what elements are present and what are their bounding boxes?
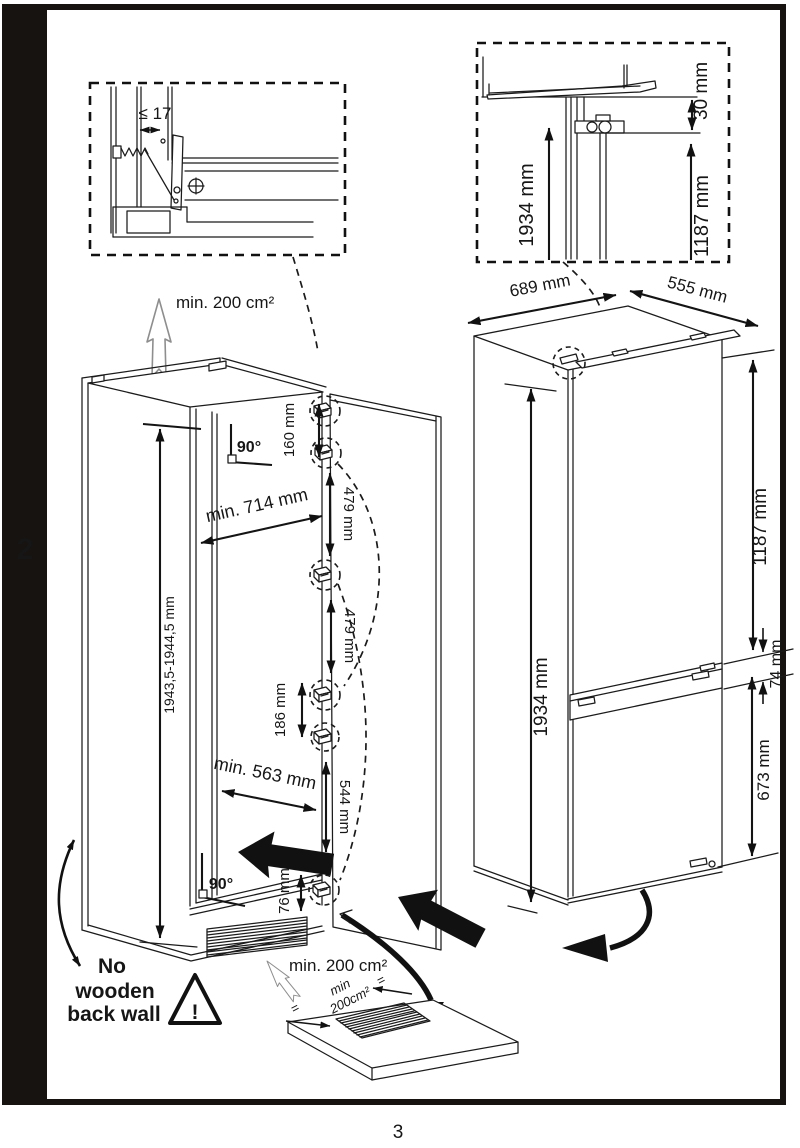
upper-section-label: 1187 mm bbox=[750, 488, 771, 566]
page-number: 3 bbox=[393, 1122, 404, 1143]
warning-line-3: back wall bbox=[67, 1003, 160, 1026]
cabinet-figure: min. 200 cm² bbox=[59, 293, 518, 1080]
base-vent-grille bbox=[207, 917, 307, 957]
depth-label: 689 mm bbox=[508, 270, 572, 300]
angle-mark-top: 90° bbox=[228, 424, 272, 465]
gap-label: 74 mm bbox=[768, 640, 785, 689]
center-mark-left: = bbox=[288, 1000, 302, 1017]
warning-exclamation: ! bbox=[192, 1001, 199, 1024]
lower-section-label: 673 mm bbox=[754, 739, 773, 800]
hinge-gap3-label: 186 mm bbox=[272, 683, 289, 737]
door-swing-arrow bbox=[562, 890, 649, 962]
door-lower-label: 544 mm bbox=[336, 780, 353, 834]
top-detail-box: 30 mm 1934 mm 1187 mm bbox=[477, 43, 729, 350]
hinge-top-offset-label: 160 mm bbox=[281, 403, 298, 457]
hinge-gap2-label: 479 mm bbox=[341, 609, 358, 663]
width-top-label: min. 714 mm bbox=[204, 484, 310, 526]
back-wall-span-arrow bbox=[59, 840, 80, 966]
no-wooden-back-wall-warning: No wooden back wall ! bbox=[67, 955, 220, 1026]
width-bottom-label: min. 563 mm bbox=[212, 753, 318, 793]
hinge-arm bbox=[145, 135, 183, 210]
vent-bottom-label: min. 200 cm² bbox=[289, 956, 388, 975]
installation-diagram: 2 3 bbox=[0, 0, 800, 1148]
top-clearance-label: 30 mm bbox=[691, 62, 712, 120]
cabinet-door-panel bbox=[330, 394, 441, 950]
appliance-figure: 689 mm 555 mm 1934 mm 1187 mm 74 mm 673 … bbox=[468, 270, 793, 962]
section-tab: 2 bbox=[17, 533, 34, 566]
hinge-screw bbox=[113, 146, 148, 158]
manual-page: 2 3 bbox=[0, 0, 800, 1148]
hinge-gap1-label: 479 mm bbox=[340, 487, 357, 541]
vent-top-label: min. 200 cm² bbox=[176, 293, 275, 312]
panel-gap-label: ≤ 17 bbox=[139, 104, 172, 123]
divider-rail bbox=[570, 663, 722, 720]
warning-line-1: No bbox=[98, 955, 126, 978]
angle-bottom-label: 90° bbox=[209, 876, 233, 893]
upper-height-label: 1187 mm bbox=[691, 175, 713, 257]
warning-line-2: wooden bbox=[74, 980, 154, 1003]
width-label: 555 mm bbox=[665, 273, 729, 307]
hinge-bottom-offset-label: 76 mm bbox=[276, 868, 293, 914]
width-bottom-arrow bbox=[222, 791, 316, 810]
height-total-label: 1934 mm bbox=[516, 163, 538, 246]
angle-top-label: 90° bbox=[237, 439, 261, 456]
height-range-label: 1943,5-1944,5 mm bbox=[161, 596, 177, 714]
center-arrow-right bbox=[373, 988, 412, 994]
detail-leader-line bbox=[293, 257, 318, 352]
height-label: 1934 mm bbox=[531, 657, 552, 736]
plinth-plate: min 200cm² = = bbox=[286, 972, 518, 1080]
